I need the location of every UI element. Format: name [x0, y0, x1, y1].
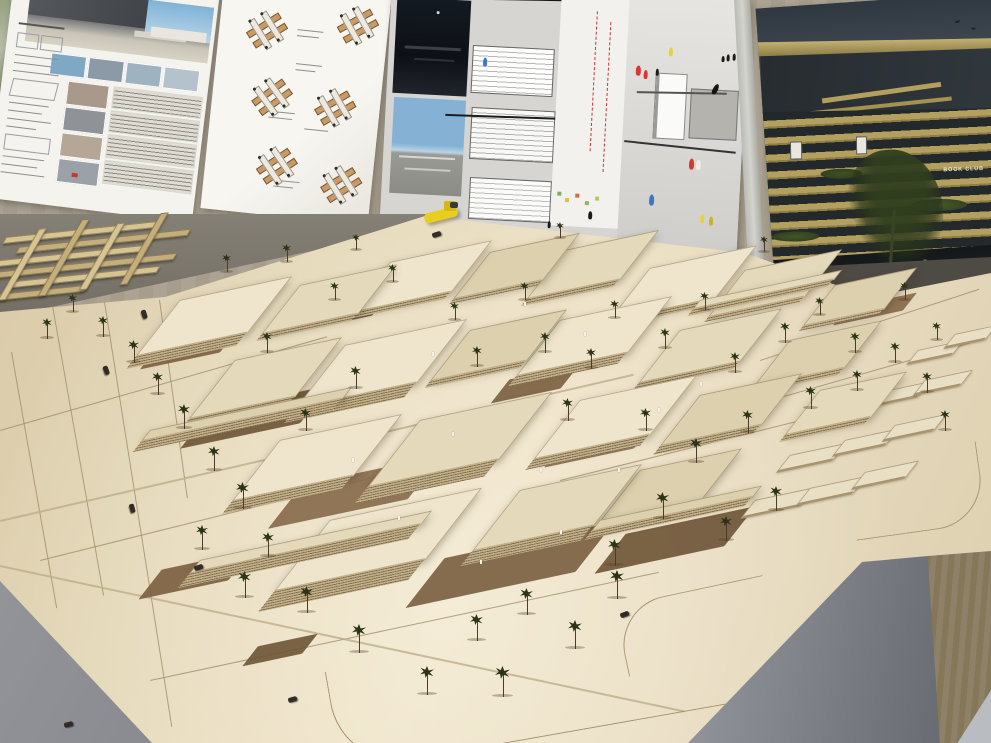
palm-tree — [922, 372, 932, 392]
photo-architectural-model-scene: BOOK CLUB — [0, 0, 991, 743]
palm-trunk — [560, 226, 561, 238]
palm-tree — [520, 282, 529, 300]
palm-trunk — [214, 453, 215, 471]
palm-trunk — [735, 358, 736, 373]
palm-tree — [282, 244, 291, 262]
palm-tree — [640, 408, 651, 430]
yellow-object-dark-part — [450, 202, 458, 208]
model-car — [620, 611, 630, 618]
palm-tree — [262, 532, 274, 556]
palm-tree — [178, 404, 190, 428]
palm-trunk — [267, 338, 268, 353]
palm-tree — [890, 342, 900, 362]
palm-trunk — [359, 632, 360, 653]
palm-trunk — [243, 489, 244, 509]
palm-tree — [730, 352, 740, 372]
model-person — [584, 332, 586, 336]
palm-tree — [562, 398, 573, 420]
palm-tree — [556, 222, 564, 238]
palm-trunk — [591, 354, 592, 369]
model-person — [700, 382, 702, 386]
palm-tree — [208, 446, 220, 470]
model-person — [560, 530, 562, 534]
palm-trunk — [945, 416, 946, 431]
palm-tree — [608, 539, 621, 565]
palm-tree — [300, 586, 313, 612]
palm-tree — [350, 366, 361, 388]
model-car — [64, 721, 74, 728]
palm-trunk — [356, 238, 357, 250]
palm-trunk — [103, 322, 104, 337]
palm-trunk — [615, 305, 616, 319]
palm-tree — [42, 318, 52, 338]
palm-trunk — [503, 674, 504, 697]
palm-trunk — [617, 578, 618, 599]
palm-trunk — [307, 593, 308, 613]
palm-tree — [610, 570, 624, 598]
palm-tree — [352, 624, 366, 652]
palm-tree — [98, 316, 108, 336]
model-person — [618, 468, 620, 472]
palm-trunk — [245, 578, 246, 598]
palm-trunk — [158, 378, 159, 395]
palm-trunk — [785, 328, 786, 343]
palm-trunk — [335, 287, 336, 301]
palm-trunk — [227, 259, 228, 273]
model-car — [103, 365, 110, 375]
palm-trunk — [575, 628, 576, 649]
palm-trunk — [811, 392, 812, 409]
palm-tree — [720, 516, 732, 540]
palm-tree — [196, 525, 208, 549]
palm-tree — [420, 666, 434, 694]
palm-trunk — [202, 532, 203, 550]
palm-tree — [568, 620, 582, 648]
palm-tree — [656, 492, 669, 518]
palm-trunk — [306, 414, 307, 431]
palm-tree — [780, 322, 790, 342]
palm-trunk — [857, 376, 858, 391]
palm-trunk — [764, 240, 765, 252]
palm-trunk — [665, 334, 666, 349]
palm-tree — [770, 486, 782, 510]
palm-trunk — [393, 269, 394, 283]
palm-tree — [470, 614, 483, 640]
palm-trunk — [895, 348, 896, 363]
palm-tree — [815, 297, 824, 315]
model-person — [398, 516, 400, 520]
palm-trunk — [568, 404, 569, 421]
palm-trunk — [545, 338, 546, 353]
palm-tree — [262, 332, 272, 352]
model-car — [141, 309, 148, 319]
palm-tree — [540, 332, 550, 352]
palm-trunk — [287, 249, 288, 263]
palm-trunk — [663, 499, 664, 519]
palm-tree — [330, 282, 339, 300]
palm-tree — [610, 300, 619, 318]
palm-tree — [932, 322, 941, 340]
model-layer — [0, 0, 991, 743]
palm-tree — [128, 340, 139, 362]
palm-tree — [760, 236, 768, 252]
model-car — [129, 503, 136, 513]
model-person — [480, 560, 482, 564]
palm-trunk — [455, 307, 456, 321]
palm-tree — [660, 328, 670, 348]
palm-trunk — [47, 324, 48, 339]
palm-trunk — [477, 352, 478, 367]
palm-trunk — [527, 595, 528, 615]
palm-tree — [742, 410, 753, 432]
palm-trunk — [134, 346, 135, 363]
palm-trunk — [525, 287, 526, 301]
palm-trunk — [646, 414, 647, 431]
palm-trunk — [905, 287, 906, 301]
model-person — [540, 468, 542, 472]
model-car — [432, 231, 442, 238]
palm-trunk — [615, 546, 616, 566]
palm-tree — [222, 254, 231, 272]
palm-tree — [700, 292, 709, 310]
palm-trunk — [73, 299, 74, 313]
palm-trunk — [268, 539, 269, 557]
palm-trunk — [705, 297, 706, 311]
palm-tree — [450, 302, 459, 320]
palm-tree — [152, 372, 163, 394]
palm-tree — [852, 370, 862, 390]
palm-trunk — [696, 445, 697, 463]
palm-tree — [388, 264, 397, 282]
palm-tree — [850, 332, 860, 352]
palm-trunk — [776, 493, 777, 511]
palm-trunk — [927, 378, 928, 393]
palm-trunk — [726, 523, 727, 541]
palm-tree — [690, 438, 702, 462]
model-person — [452, 432, 454, 436]
palm-tree — [472, 346, 482, 366]
palm-tree — [940, 410, 950, 430]
palm-tree — [805, 386, 816, 408]
palm-tree — [586, 348, 596, 368]
palm-trunk — [356, 372, 357, 389]
palm-trunk — [937, 327, 938, 341]
palm-trunk — [477, 621, 478, 641]
palm-tree — [300, 408, 311, 430]
palm-tree — [236, 482, 249, 508]
palm-trunk — [820, 302, 821, 316]
palm-trunk — [427, 674, 428, 695]
model-person — [658, 408, 660, 412]
palm-trunk — [184, 411, 185, 429]
palm-trunk — [855, 338, 856, 353]
palm-trunk — [748, 416, 749, 433]
model-car — [288, 696, 298, 703]
palm-tree — [68, 294, 77, 312]
palm-tree — [352, 234, 360, 250]
model-person — [432, 352, 434, 356]
palm-tree — [238, 571, 251, 597]
palm-tree — [520, 588, 533, 614]
model-person — [524, 302, 526, 306]
palm-tree — [900, 282, 909, 300]
palm-tree — [495, 666, 510, 696]
model-person — [352, 458, 354, 462]
